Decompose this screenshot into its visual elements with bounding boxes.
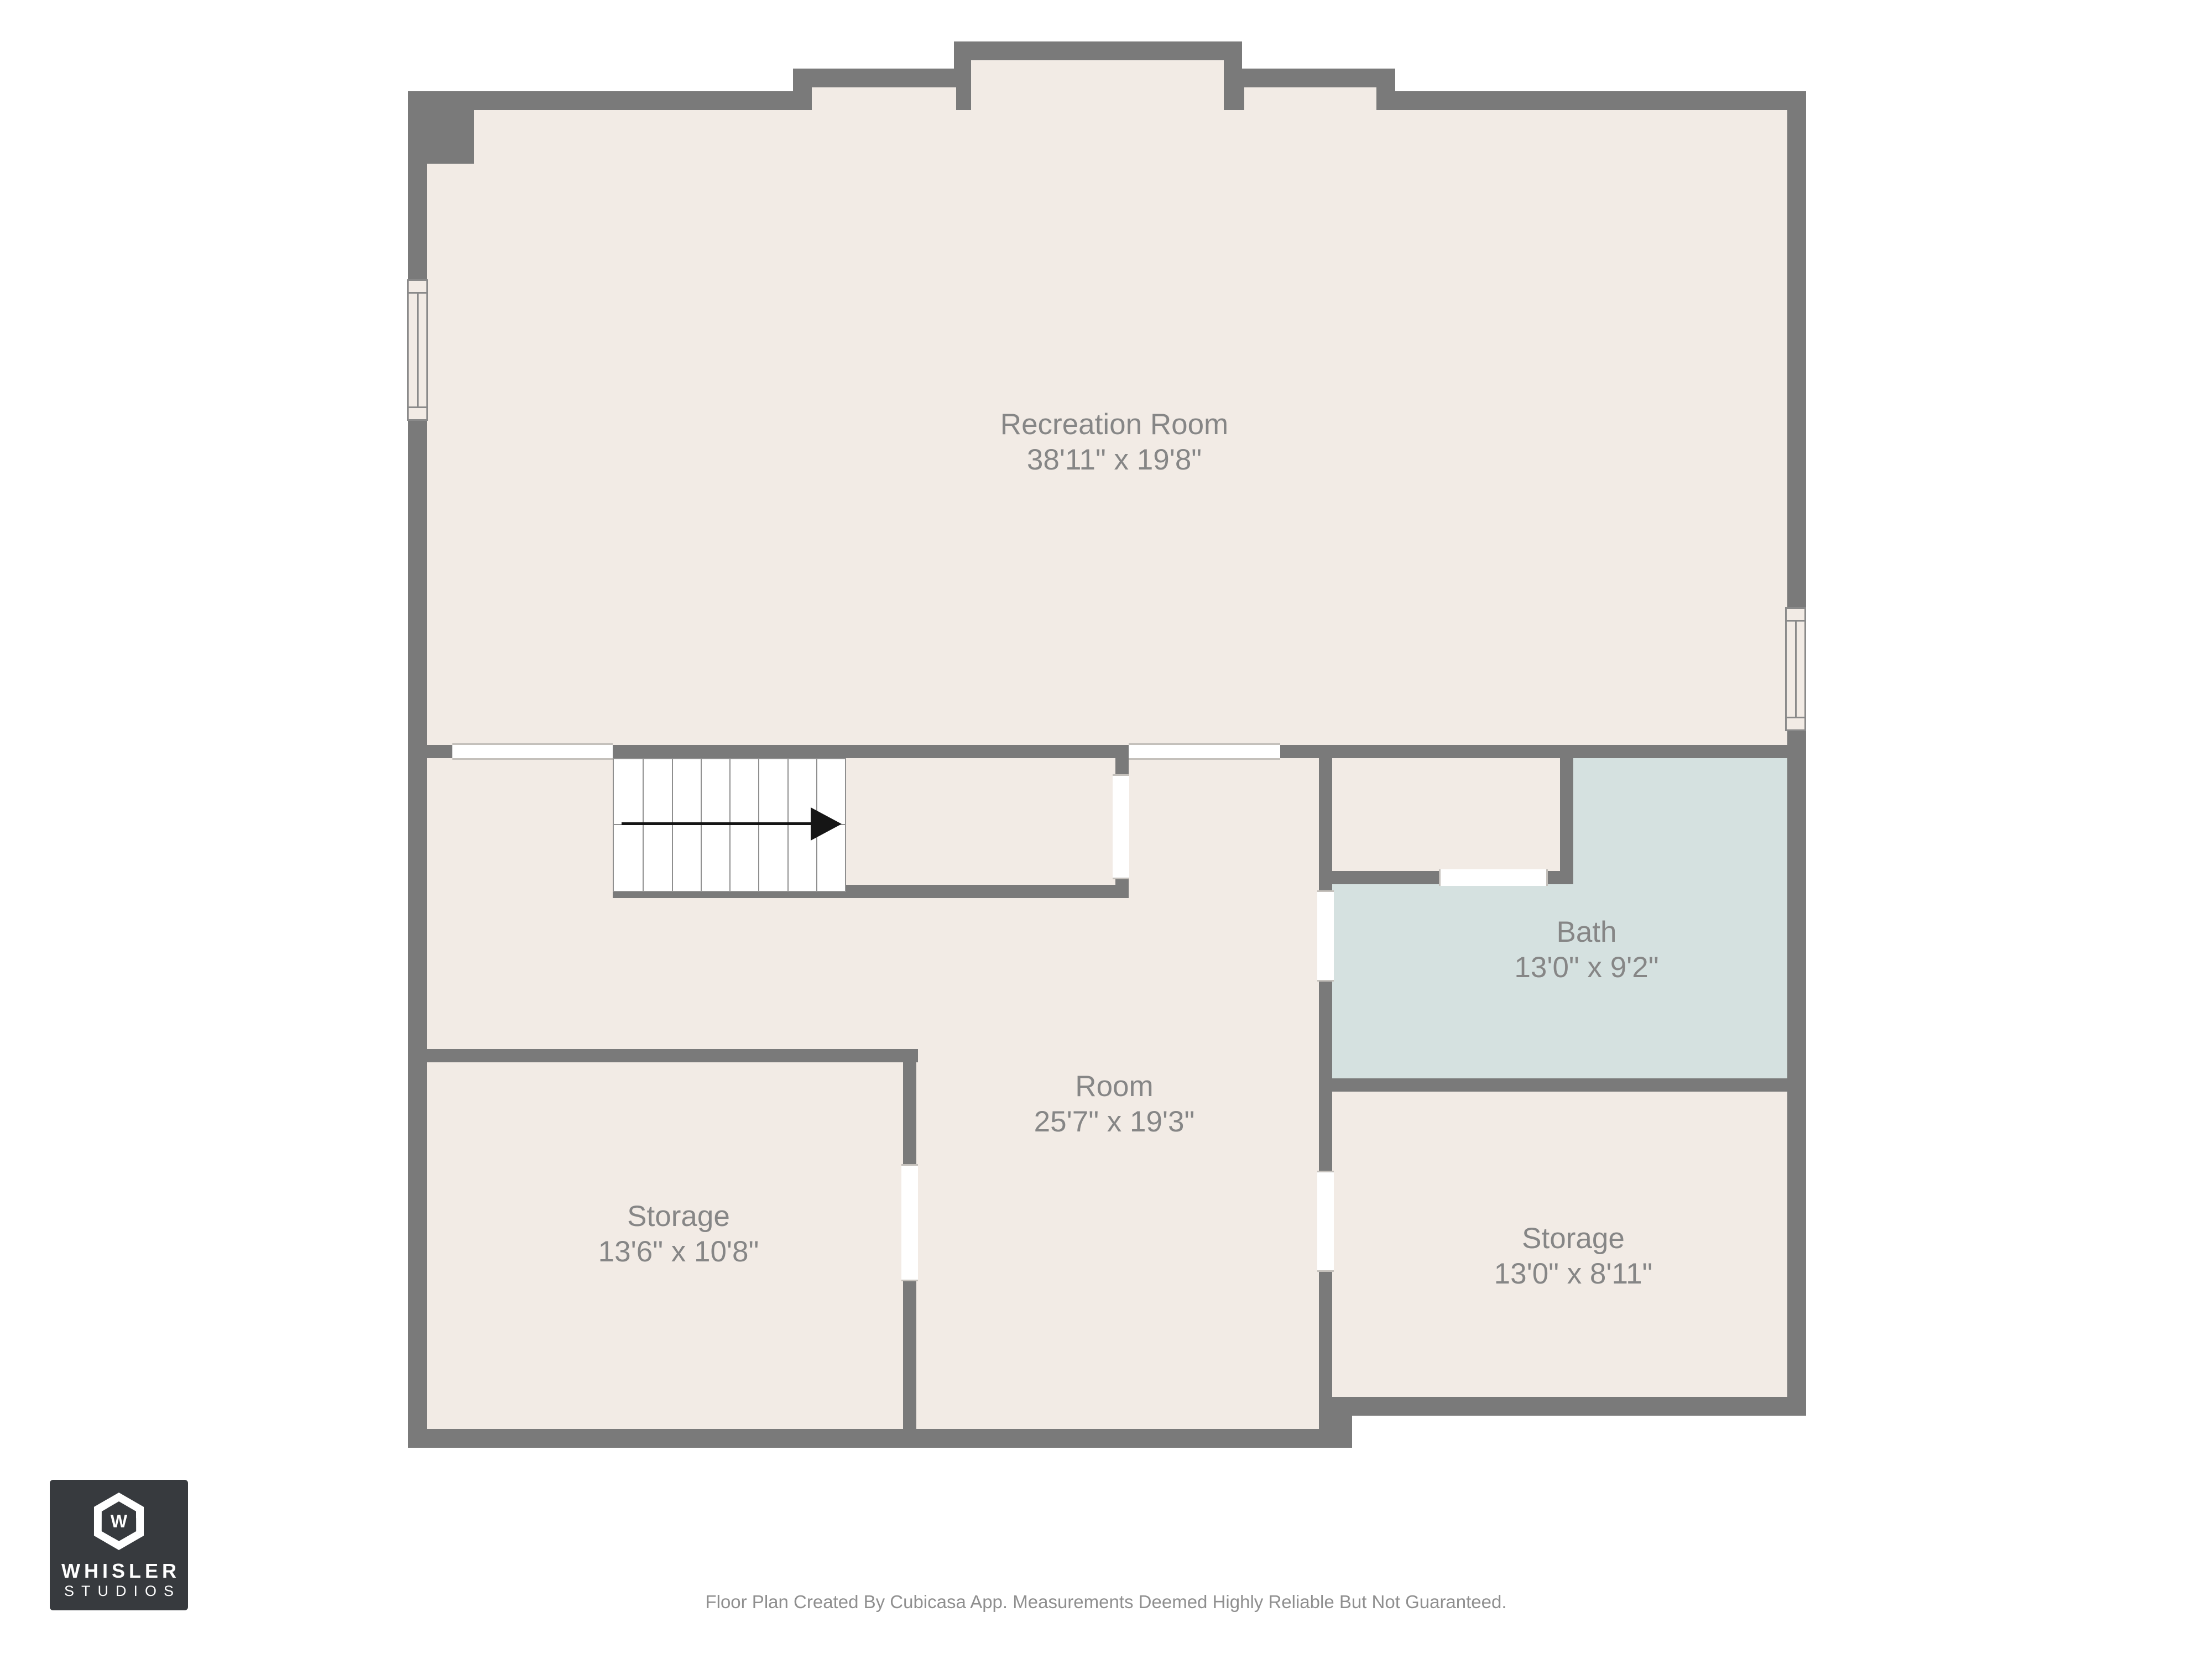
door-opening-bath-left [1317,890,1334,982]
wall-storage-left-top [408,1049,918,1062]
logo-name-text: WHISLER [50,1559,188,1583]
door-opening-storage-left [901,1164,918,1281]
room-name: Recreation Room [1000,407,1228,442]
window-right-wall [1785,607,1806,731]
room-dims: 25'7" x 19'3" [1034,1104,1195,1140]
label-storage-left: Storage 13'6" x 10'8" [598,1199,759,1270]
window-glass-line [1795,622,1797,717]
wall-bath-bottom [1319,1078,1787,1092]
stair-tread-line [787,759,789,891]
wall-exterior-right [1787,91,1806,1416]
bump-center-floor [971,60,1224,110]
door-opening-nook-bath [1439,869,1548,886]
label-bath: Bath 13'0" x 9'2" [1514,915,1658,985]
wall-recroom-bottom-a [427,745,452,758]
stair-tread-line [672,759,673,891]
room-dims: 13'6" x 10'8" [598,1234,759,1270]
bath-floor-upper [1573,758,1787,884]
stair-direction-arrow-line [622,822,816,825]
room-name: Storage [598,1199,759,1234]
stair-tread-line [643,759,644,891]
bump-right-floor [1244,87,1376,110]
floor-plan-canvas: Recreation Room 38'11" x 19'8" Room 25'7… [0,0,2212,1659]
stair-direction-arrow-head [811,807,842,841]
wall-exterior-top-left [408,91,793,110]
wall-exterior-top-right [1395,91,1806,110]
wall-recroom-bottom-c [1280,745,1787,758]
wall-nook-right [1560,758,1573,884]
room-dims: 13'0" x 9'2" [1514,950,1658,985]
room-name: Room [1034,1069,1195,1104]
wall-exterior-bottom-right [1319,1397,1806,1416]
window-glass-line [417,294,419,406]
logo-monogram: W [111,1511,128,1531]
window-cap [409,406,426,408]
room-dims: 13'0" x 8'11" [1494,1256,1653,1292]
room-name: Storage [1494,1221,1653,1256]
stair-tread-line [729,759,731,891]
stair-tread-line [758,759,759,891]
footer-disclaimer: Floor Plan Created By Cubicasa App. Meas… [0,1592,2212,1613]
wall-recroom-bottom-b [613,745,1129,758]
stair-tread-line [701,759,702,891]
label-storage-right: Storage 13'0" x 8'11" [1494,1221,1653,1292]
passage-recroom-left [452,743,613,760]
wall-exterior-bottom-left [408,1429,1352,1448]
floor-area-left [427,110,1352,1429]
door-opening-storage-right [1317,1171,1334,1272]
door-opening-corridor [1113,774,1129,879]
label-recreation-room: Recreation Room 38'11" x 19'8" [1000,407,1228,478]
window-left-wall [407,279,428,421]
label-room: Room 25'7" x 19'3" [1034,1069,1195,1140]
passage-recroom-right [1129,743,1280,760]
whisler-hexagon-icon: W [86,1488,152,1555]
bump-left-floor [812,87,956,110]
wall-bottom-step-connector [1319,1397,1352,1448]
room-name: Bath [1514,915,1658,950]
window-cap [1787,717,1804,718]
room-dims: 38'11" x 19'8" [1000,442,1228,478]
